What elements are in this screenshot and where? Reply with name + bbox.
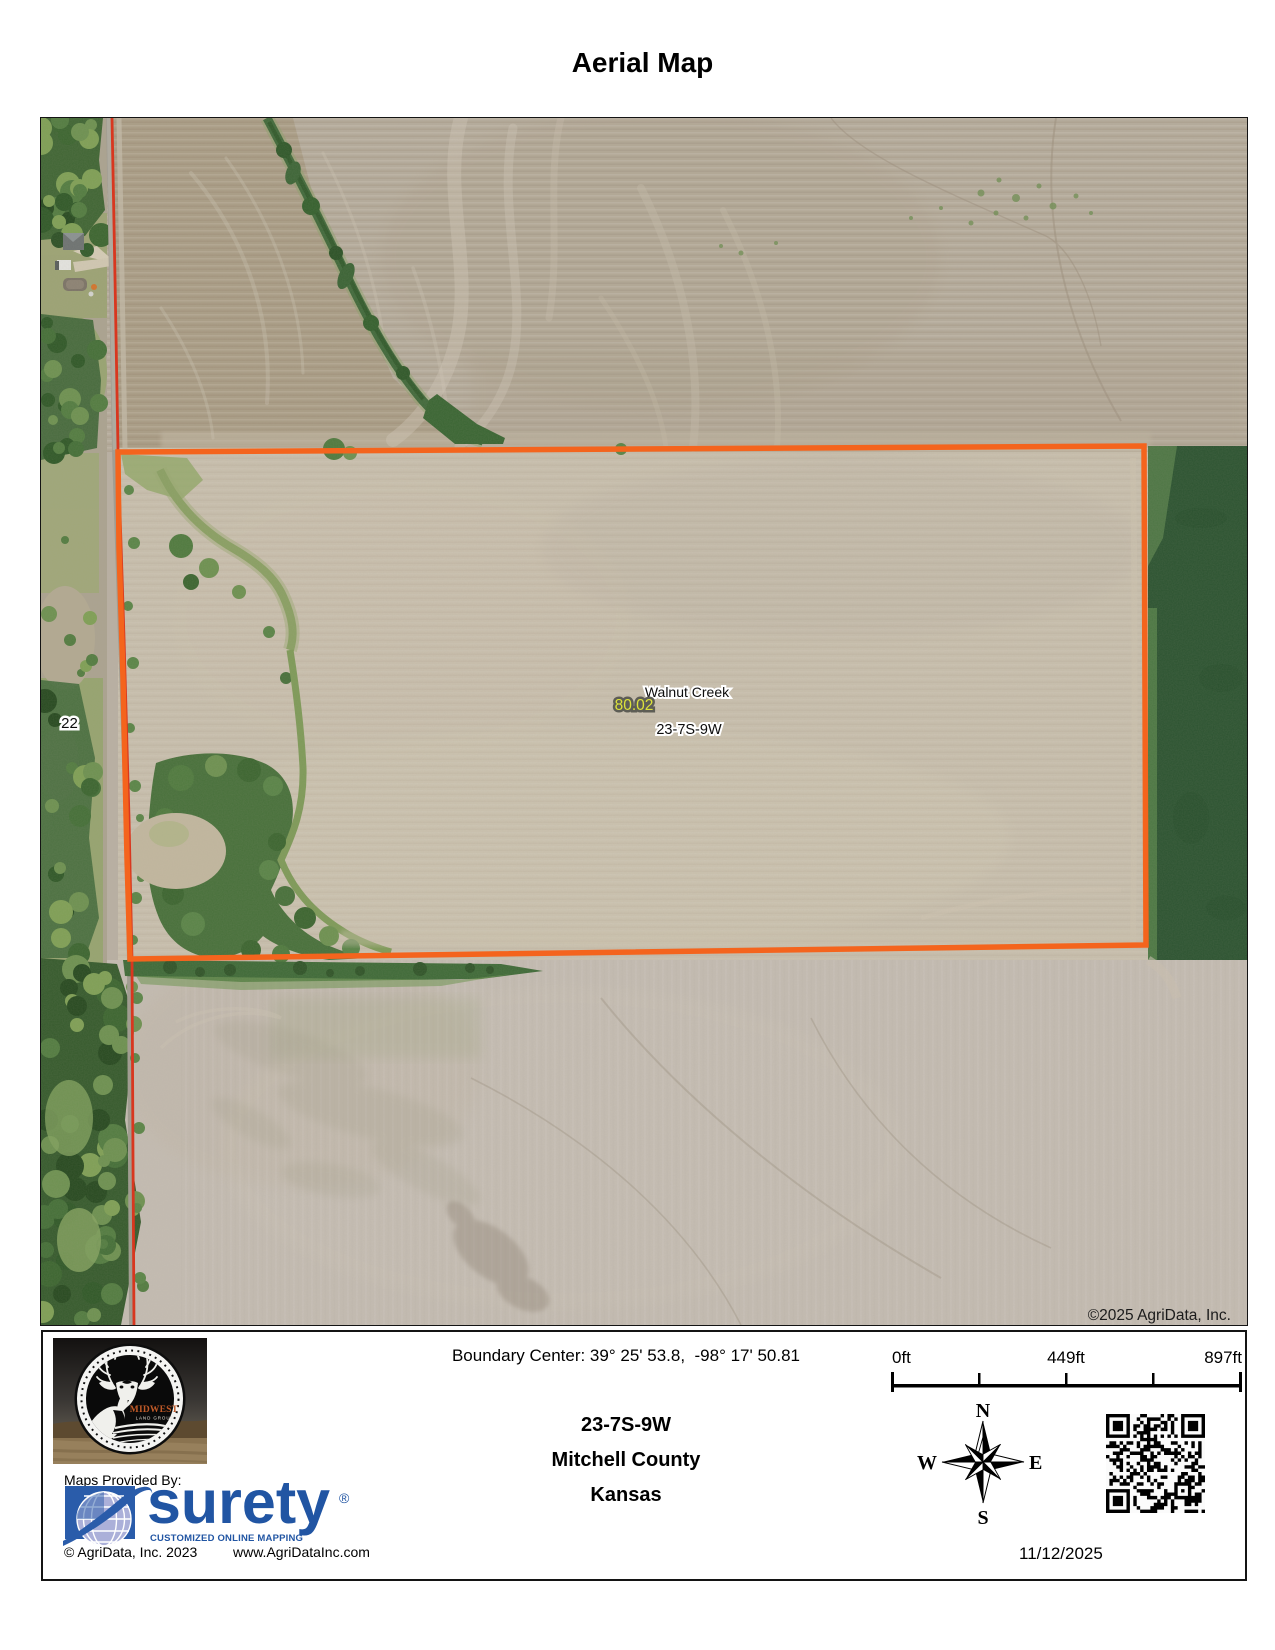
svg-text:MIDWEST: MIDWEST: [130, 1405, 179, 1415]
svg-text:N: N: [976, 1400, 991, 1422]
svg-text:W: W: [917, 1452, 937, 1474]
svg-text:©2025 AgriData, Inc.: ©2025 AgriData, Inc.: [1088, 1307, 1231, 1324]
svg-text:Walnut Creek: Walnut Creek: [645, 684, 730, 700]
svg-text:E: E: [1029, 1452, 1042, 1474]
svg-text:LAND GROUP: LAND GROUP: [136, 1416, 175, 1421]
svg-text:22: 22: [61, 715, 78, 732]
svg-text:80.02: 80.02: [615, 697, 654, 714]
svg-text:897ft: 897ft: [1204, 1348, 1242, 1367]
svg-text:449ft: 449ft: [1047, 1348, 1085, 1367]
svg-text:S: S: [977, 1507, 988, 1529]
svg-text:23-7S-9W: 23-7S-9W: [656, 722, 722, 738]
svg-text:0ft: 0ft: [892, 1348, 911, 1367]
